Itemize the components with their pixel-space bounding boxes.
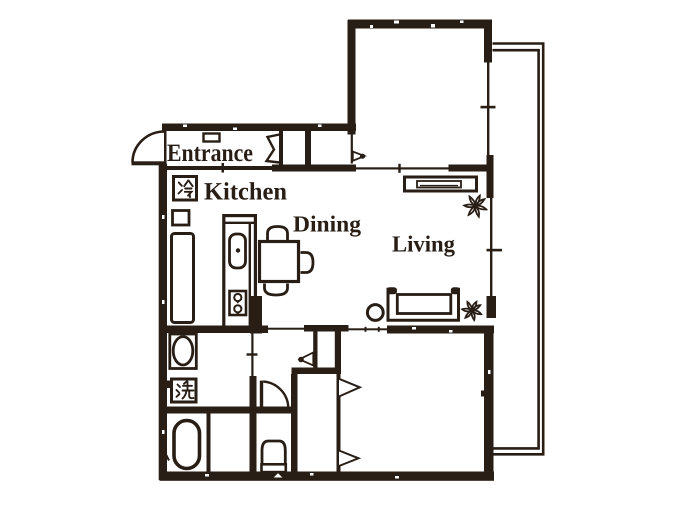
svg-text:Kitchen: Kitchen	[204, 179, 287, 206]
svg-text:Dining: Dining	[293, 211, 361, 237]
svg-text:Living: Living	[392, 232, 455, 258]
svg-text:Entrance: Entrance	[167, 140, 253, 167]
